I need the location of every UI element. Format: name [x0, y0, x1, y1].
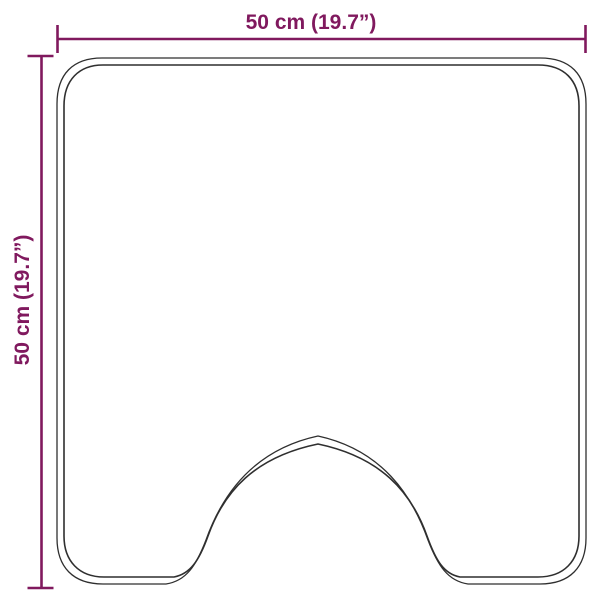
mat-outline-outer: [57, 58, 586, 584]
mat-outline-inner: [64, 65, 579, 577]
height-dimension-label: 50 cm (19.7”): [11, 235, 34, 366]
diagram-canvas: 50 cm (19.7”) 50 cm (19.7”): [0, 0, 600, 600]
dimension-diagram: 50 cm (19.7”) 50 cm (19.7”): [0, 0, 600, 600]
height-dimension: 50 cm (19.7”): [11, 56, 54, 588]
width-dimension-label: 50 cm (19.7”): [246, 11, 377, 34]
width-dimension: 50 cm (19.7”): [58, 11, 586, 53]
